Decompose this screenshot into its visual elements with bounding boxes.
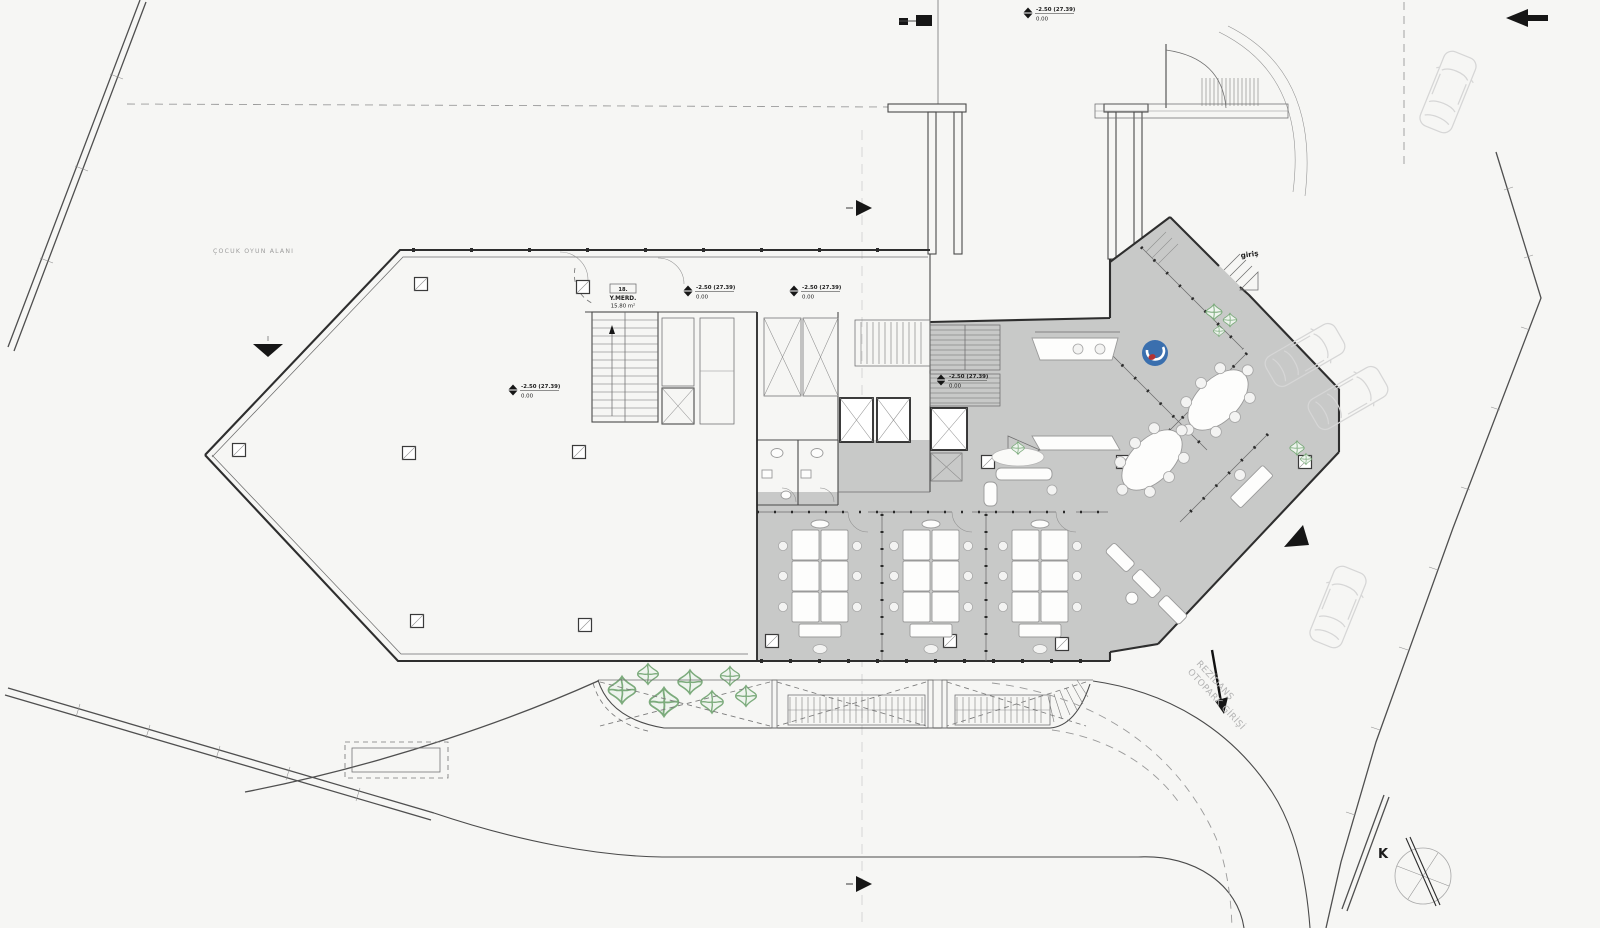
brand-floor-logo	[1142, 340, 1168, 366]
svg-text:0.00: 0.00	[1036, 17, 1049, 23]
svg-text:-2.50 (27.39): -2.50 (27.39)	[802, 285, 841, 291]
lobby-sofa	[996, 468, 1052, 480]
lobby-sofa	[984, 482, 997, 506]
stair-number-label: 18.	[618, 287, 627, 293]
svg-text:-2.50 (27.39): -2.50 (27.39)	[696, 285, 735, 291]
play-area-label: ÇOCUK OYUN ALANI	[213, 248, 294, 255]
stair-area-label: 15.80 m²	[611, 303, 636, 310]
site-background	[0, 0, 1600, 928]
svg-text:0.00: 0.00	[696, 295, 709, 301]
svg-text:0.00: 0.00	[949, 384, 962, 390]
svg-text:-2.50 (27.39): -2.50 (27.39)	[1036, 7, 1075, 13]
planter-ledge	[1032, 436, 1120, 450]
office-furniture	[778, 520, 1081, 654]
svg-text:0.00: 0.00	[521, 394, 534, 400]
svg-text:-2.50 (27.39): -2.50 (27.39)	[521, 384, 560, 390]
svg-text:0.00: 0.00	[802, 295, 815, 301]
stair-name-label: Y.MERD.	[609, 296, 637, 302]
north-letter: K	[1378, 847, 1389, 862]
elevator-lobby-floor	[838, 440, 930, 492]
svg-text:-2.50 (27.39): -2.50 (27.39)	[949, 374, 988, 380]
floor-plan-sheet: K -2.50 (27.39) 0.00 -2.50 (27.39) 0.00 …	[0, 0, 1600, 928]
